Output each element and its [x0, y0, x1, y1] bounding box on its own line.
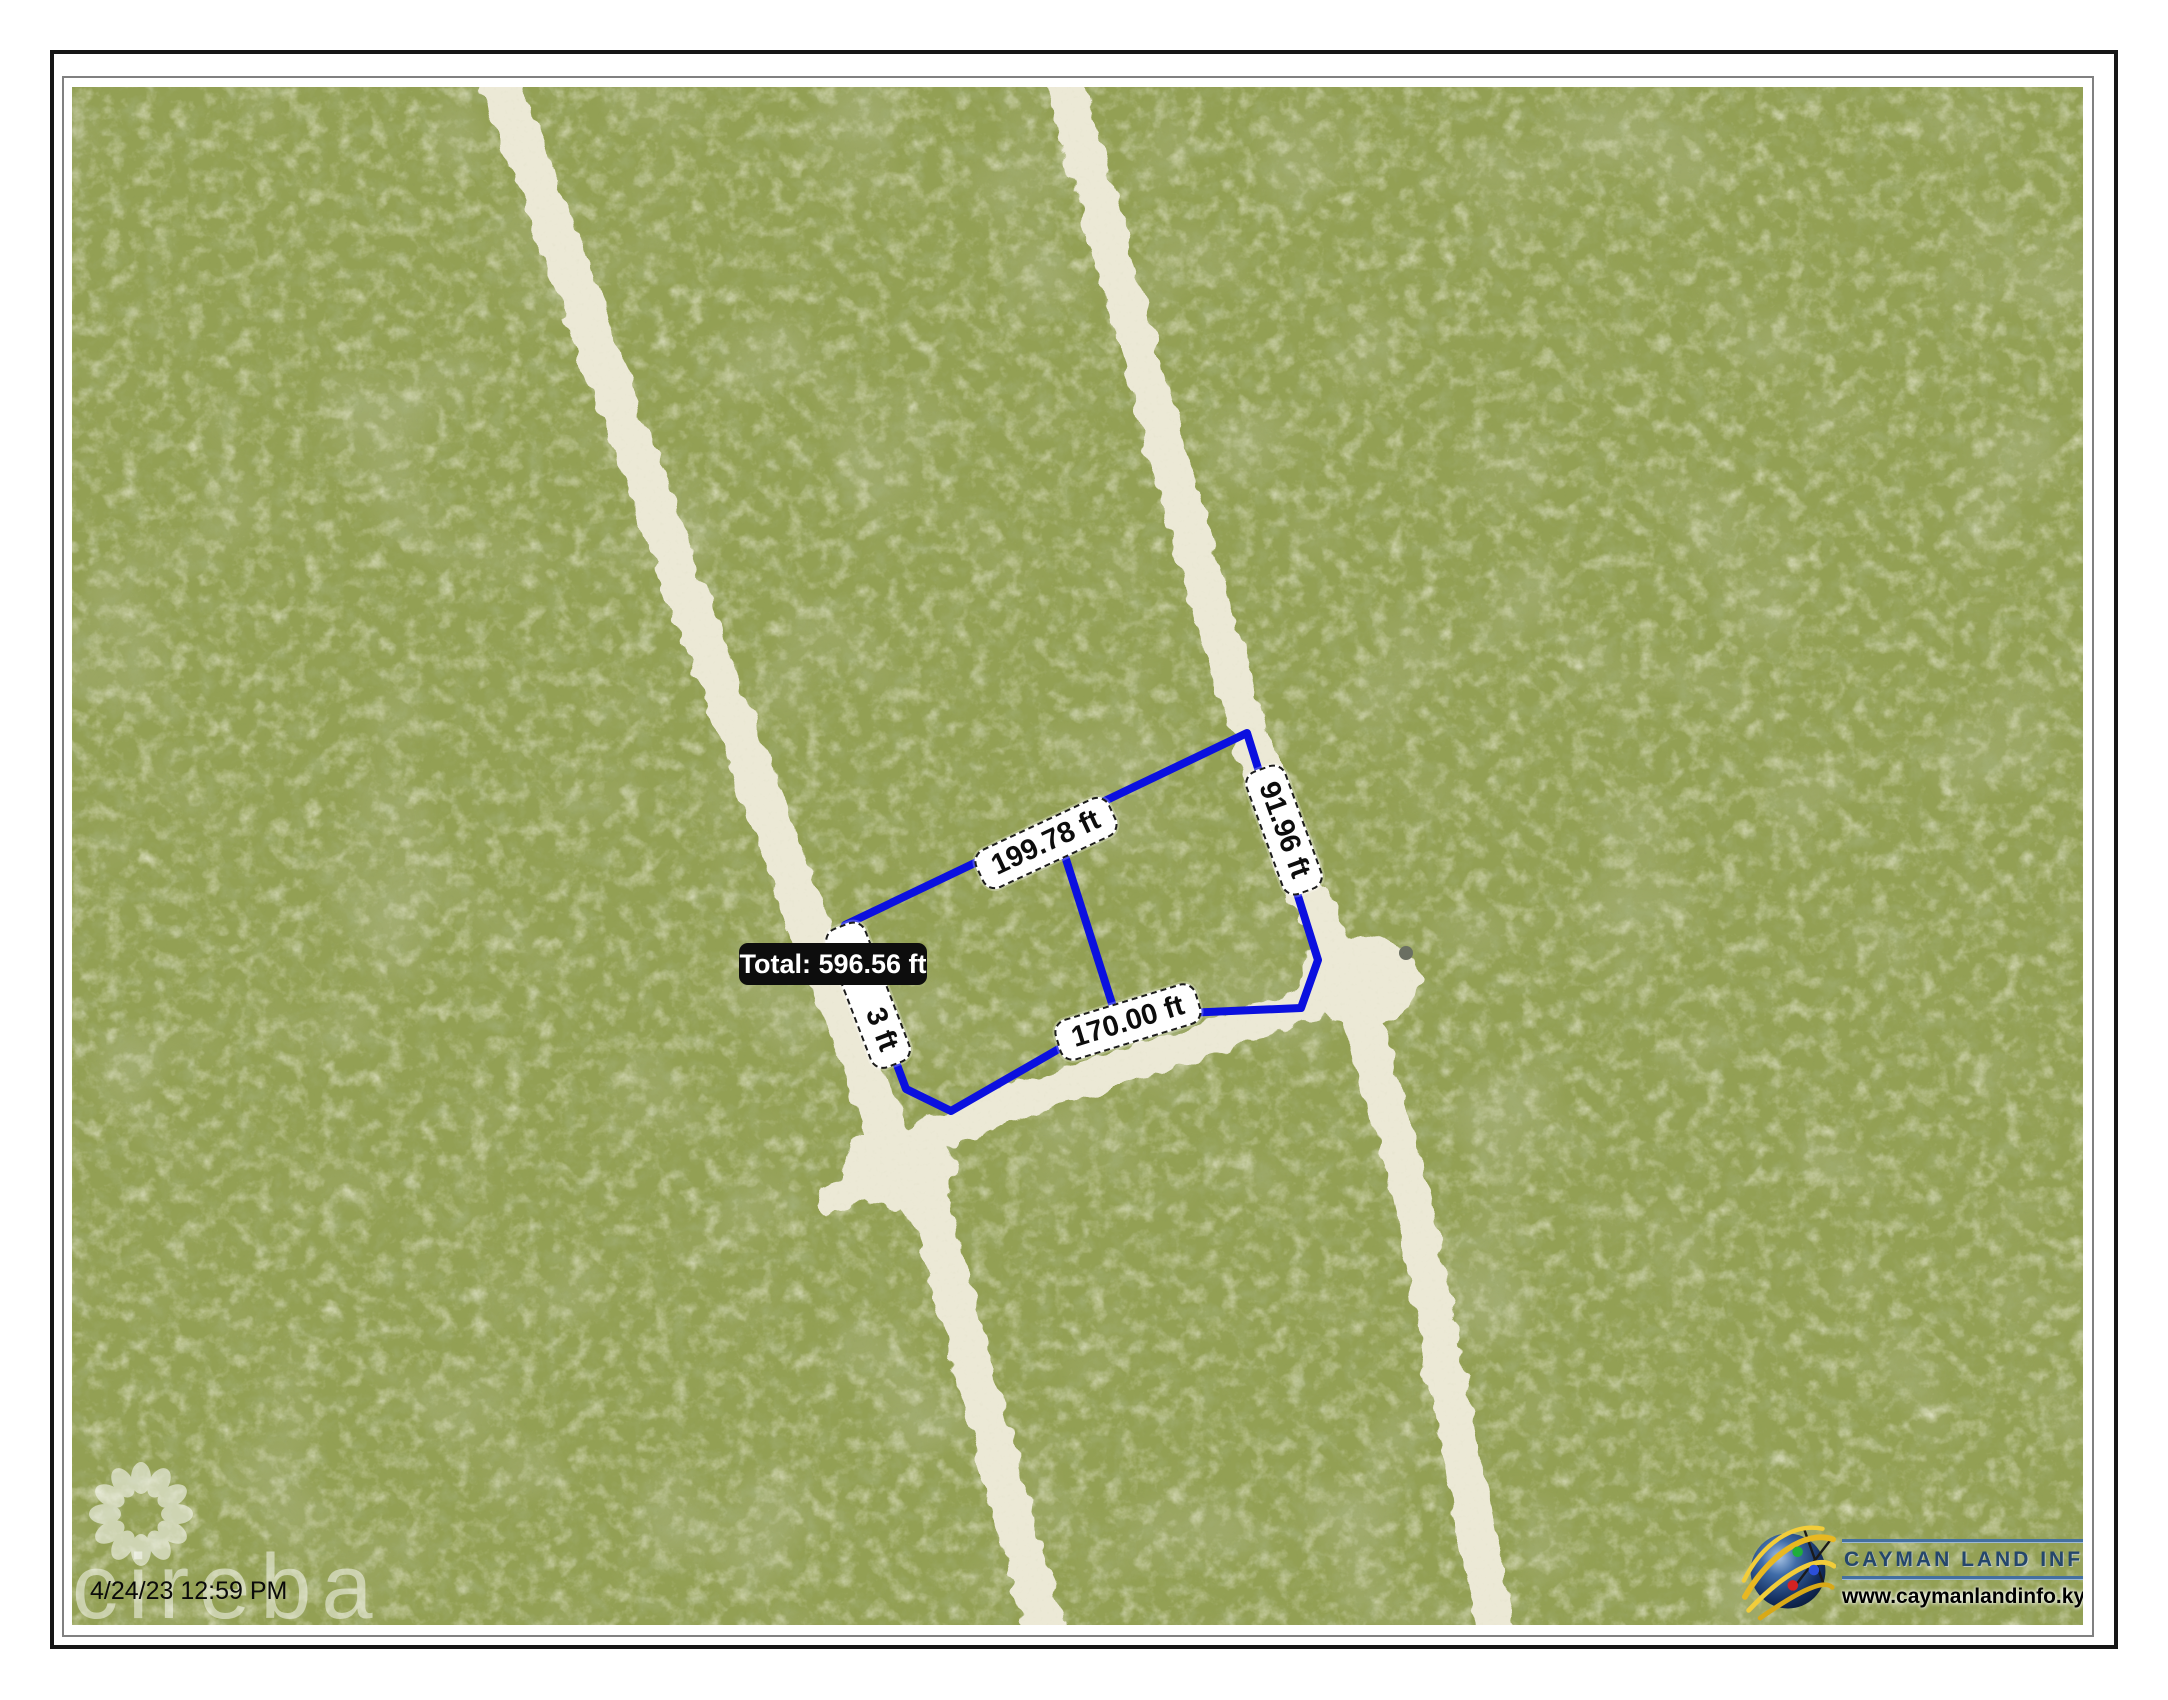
logo-rule-bottom [1842, 1576, 2083, 1580]
timestamp: 4/24/23 12:59 PM [90, 1577, 287, 1606]
total-length-label: Total: 596.56 ft [739, 943, 927, 985]
vehicle-dot [1399, 946, 1413, 960]
globe-icon [1740, 1519, 1836, 1626]
map-document-page: 3 ft Total: 596.56 ft 199.78 ft 91.96 ft… [0, 0, 2168, 1700]
cayman-land-info-logo: CAYMAN LAND INFO www.caymanlandinfo.ky [1740, 1523, 2083, 1623]
aerial-map[interactable]: 3 ft Total: 596.56 ft 199.78 ft 91.96 ft… [72, 87, 2083, 1625]
logo-website: www.caymanlandinfo.ky [1842, 1582, 2083, 1609]
logo-title: CAYMAN LAND INFO [1842, 1545, 2083, 1574]
logo-rule-top [1842, 1539, 2083, 1543]
aerial-imagery [72, 87, 2083, 1625]
